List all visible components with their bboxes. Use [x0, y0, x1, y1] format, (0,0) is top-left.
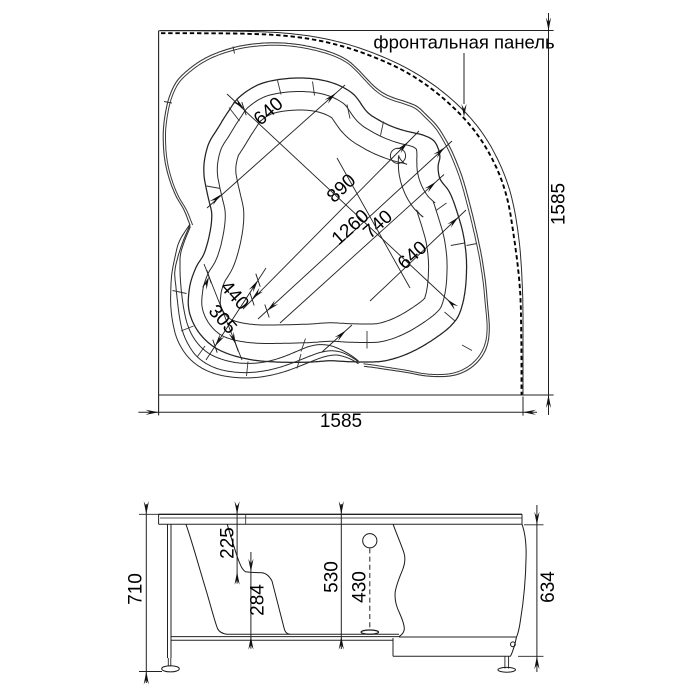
svg-text:284: 284 — [248, 584, 269, 616]
svg-text:634: 634 — [538, 571, 559, 603]
svg-text:1585: 1585 — [549, 183, 570, 225]
svg-text:530: 530 — [322, 561, 343, 593]
svg-text:640: 640 — [250, 93, 288, 130]
svg-text:710: 710 — [125, 573, 146, 605]
svg-text:225: 225 — [218, 527, 239, 559]
svg-text:430: 430 — [350, 571, 371, 603]
svg-text:фронтальная панель: фронтальная панель — [373, 31, 554, 52]
svg-text:740: 740 — [359, 206, 397, 243]
svg-text:1585: 1585 — [320, 411, 362, 432]
